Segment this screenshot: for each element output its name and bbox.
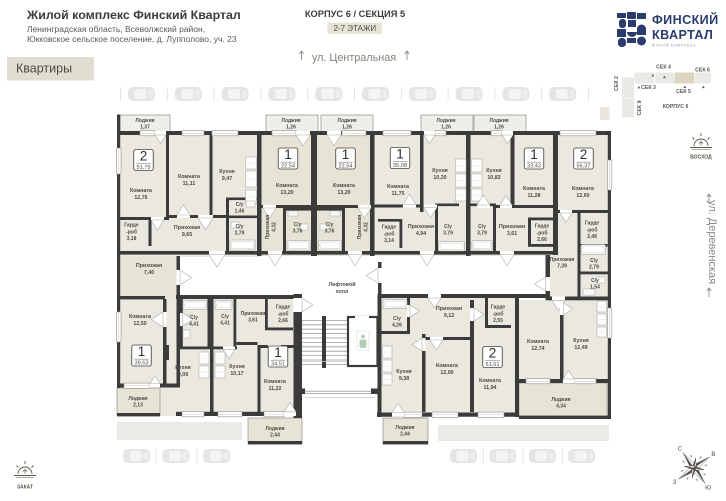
svg-text:Комната: Комната (479, 378, 501, 384)
svg-text:СЕК 1: СЕК 1 (637, 101, 643, 116)
svg-text:Гарде: Гарде (124, 223, 139, 229)
svg-text:33,43: 33,43 (527, 163, 541, 169)
svg-text:3,14: 3,14 (384, 238, 394, 244)
svg-text:51,61: 51,61 (486, 362, 500, 368)
svg-text:холл: холл (336, 289, 349, 295)
svg-text:С/у: С/у (591, 278, 599, 284)
svg-text:С/у: С/у (393, 316, 401, 322)
svg-text:Прихожая: Прихожая (136, 263, 162, 269)
svg-text:2: 2 (580, 147, 588, 162)
svg-text:2,66: 2,66 (278, 318, 288, 324)
svg-text:11,22: 11,22 (269, 386, 282, 392)
svg-text:1: 1 (342, 147, 350, 162)
svg-text:С/у: С/у (590, 258, 598, 264)
svg-text:С/у: С/у (221, 314, 229, 320)
svg-text:Кухня: Кухня (229, 364, 244, 370)
svg-text:Лоджия: Лоджия (128, 396, 147, 402)
svg-text:3,76: 3,76 (325, 229, 335, 235)
svg-text:2,55: 2,55 (493, 318, 503, 324)
svg-text:2,66: 2,66 (537, 237, 547, 243)
svg-text:В: В (711, 452, 715, 458)
svg-text:-роб: -роб (278, 310, 289, 317)
svg-text:13,20: 13,20 (337, 190, 350, 196)
svg-text:Ленинградская область, Всеволж: Ленинградская область, Всеволжский район… (27, 24, 205, 34)
svg-text:51,79: 51,79 (137, 165, 151, 171)
svg-text:9,65: 9,65 (182, 232, 192, 238)
svg-text:-роб: -роб (537, 229, 548, 236)
svg-text:1,54: 1,54 (590, 285, 600, 291)
svg-text:2,48: 2,48 (587, 234, 597, 240)
svg-text:Лоджия: Лоджия (551, 397, 570, 403)
svg-text:Прихожая: Прихожая (241, 311, 266, 317)
svg-text:1,26: 1,26 (494, 125, 504, 131)
svg-text:Кухня: Кухня (219, 169, 234, 175)
svg-text:9,12: 9,12 (444, 313, 454, 319)
svg-text:-роб: -роб (493, 310, 504, 317)
svg-text:Кухня: Кухня (573, 338, 588, 344)
svg-text:Квартиры: Квартиры (16, 62, 72, 76)
svg-text:12,00: 12,00 (440, 370, 453, 376)
svg-text:35,08: 35,08 (393, 163, 407, 169)
svg-text:2,79: 2,79 (589, 265, 599, 271)
svg-text:Комната: Комната (523, 186, 545, 192)
svg-text:Прихожая: Прихожая (550, 257, 575, 263)
svg-text:Гарде: Гарде (382, 225, 397, 231)
svg-text:9,09: 9,09 (178, 372, 188, 378)
svg-text:С: С (678, 447, 683, 453)
svg-text:4,41: 4,41 (220, 321, 230, 327)
svg-text:10,83: 10,83 (487, 175, 500, 181)
svg-text:Юкковское сельское поселение,: Юкковское сельское поселение, д. Лупполо… (27, 34, 237, 44)
svg-text:С/у: С/у (326, 222, 334, 228)
svg-text:11,94: 11,94 (484, 385, 497, 391)
svg-text:Лоджия: Лоджия (265, 426, 284, 432)
svg-text:Гарде: Гарде (276, 305, 291, 311)
svg-text:9,38: 9,38 (399, 376, 409, 382)
svg-text:Прихожая: Прихожая (357, 215, 363, 240)
svg-text:Жилой комплекс Финский Квартал: Жилой комплекс Финский Квартал (26, 8, 241, 22)
svg-text:2,44: 2,44 (270, 433, 280, 439)
svg-text:КОРПУС 6: КОРПУС 6 (663, 104, 689, 110)
svg-text:Прихожая: Прихожая (174, 225, 200, 231)
svg-text:12,60: 12,60 (576, 193, 589, 199)
svg-text:С/у: С/у (190, 315, 198, 321)
svg-text:2-7 ЭТАЖИ: 2-7 ЭТАЖИ (333, 24, 376, 33)
svg-text:3,79: 3,79 (477, 231, 487, 237)
svg-text:КОРПУС 6 / СЕКЦИЯ 5: КОРПУС 6 / СЕКЦИЯ 5 (305, 9, 405, 19)
svg-text:11,28: 11,28 (528, 193, 541, 199)
svg-text:З: З (673, 480, 677, 486)
svg-text:Прихожая: Прихожая (499, 224, 525, 230)
svg-text:Лифтовой: Лифтовой (329, 281, 356, 288)
svg-text:КВАРТАЛ: КВАРТАЛ (652, 28, 713, 42)
svg-text:С/у: С/у (478, 224, 486, 230)
svg-text:56,37: 56,37 (577, 163, 591, 169)
svg-text:Ю: Ю (705, 485, 711, 491)
svg-text:СЕК 5: СЕК 5 (676, 89, 691, 95)
svg-text:4,32: 4,32 (272, 222, 278, 232)
svg-text:1,26: 1,26 (441, 125, 451, 131)
svg-text:12,76: 12,76 (134, 195, 147, 201)
svg-text:2,79: 2,79 (235, 231, 245, 237)
svg-text:Гарде: Гарде (491, 305, 506, 311)
svg-text:1: 1 (396, 146, 404, 161)
svg-text:Комната: Комната (527, 339, 549, 345)
svg-text:ФИНСКИЙ: ФИНСКИЙ (652, 12, 719, 27)
svg-text:Лоджия: Лоджия (395, 425, 414, 431)
svg-text:ВОСХОД: ВОСХОД (690, 154, 712, 160)
svg-text:СЕК 2: СЕК 2 (614, 76, 620, 91)
svg-text:Комната: Комната (178, 174, 200, 180)
svg-text:13,20: 13,20 (280, 190, 293, 196)
svg-text:1,26: 1,26 (286, 125, 296, 131)
svg-text:ЗАКАТ: ЗАКАТ (17, 484, 33, 490)
svg-text:Комната: Комната (129, 314, 151, 320)
svg-text:Лоджия: Лоджия (489, 118, 508, 124)
svg-text:-роб: -роб (126, 228, 137, 235)
svg-text:2,13: 2,13 (133, 403, 143, 409)
svg-text:С/у: С/у (236, 224, 244, 230)
svg-text:Лоджия: Лоджия (436, 118, 455, 124)
svg-text:2: 2 (489, 345, 497, 360)
svg-text:1: 1 (530, 147, 538, 162)
svg-text:Комната: Комната (264, 379, 286, 385)
svg-text:12,50: 12,50 (133, 321, 146, 327)
svg-text:Лоджия: Лоджия (337, 118, 356, 124)
svg-text:Лоджия: Лоджия (281, 118, 300, 124)
svg-text:2,44: 2,44 (400, 432, 410, 438)
svg-text:1,46: 1,46 (235, 209, 245, 215)
svg-text:10,17: 10,17 (230, 371, 243, 377)
svg-text:7,40: 7,40 (144, 270, 154, 276)
svg-text:1,37: 1,37 (140, 125, 150, 131)
svg-text:4,32: 4,32 (364, 222, 370, 232)
svg-text:Комната: Комната (572, 186, 594, 192)
svg-text:Кухня: Кухня (432, 168, 447, 174)
svg-text:Комната: Комната (333, 183, 355, 189)
svg-text:22,54: 22,54 (339, 163, 353, 169)
svg-text:3,61: 3,61 (248, 318, 258, 324)
svg-text:39,53: 39,53 (135, 360, 149, 366)
svg-text:4,41: 4,41 (189, 322, 199, 328)
svg-text:Прихожая: Прихожая (265, 215, 271, 240)
svg-text:С/у: С/у (444, 224, 452, 230)
svg-text:С/у: С/у (294, 222, 302, 228)
svg-text:Кухня: Кухня (396, 369, 411, 375)
svg-text:11,75: 11,75 (392, 191, 405, 197)
svg-text:СЕК 6: СЕК 6 (695, 67, 710, 73)
svg-text:Кухня: Кухня (486, 168, 501, 174)
svg-text:1,26: 1,26 (342, 125, 352, 131)
svg-text:Прихожая: Прихожая (408, 224, 434, 230)
svg-text:9,47: 9,47 (222, 176, 232, 182)
svg-text:Комната: Комната (387, 184, 409, 190)
svg-text:1: 1 (138, 344, 146, 359)
svg-text:СЕК 4: СЕК 4 (656, 64, 671, 70)
svg-text:ул. Центральная: ул. Центральная (312, 52, 396, 64)
svg-text:4,26: 4,26 (392, 323, 402, 329)
svg-text:Комната: Комната (130, 188, 152, 194)
svg-text:34,51: 34,51 (271, 361, 285, 367)
svg-text:4,34: 4,34 (556, 404, 566, 410)
svg-text:ул. Деревенская: ул. Деревенская (706, 200, 718, 284)
svg-text:12,74: 12,74 (531, 346, 544, 352)
svg-text:-роб: -роб (384, 230, 395, 237)
svg-text:Прихожая: Прихожая (436, 306, 462, 312)
svg-text:1: 1 (284, 147, 292, 162)
svg-text:12,49: 12,49 (574, 345, 587, 351)
svg-text:11,11: 11,11 (183, 181, 196, 187)
svg-text:С/у: С/у (236, 202, 244, 208)
svg-text:Кухня: Кухня (175, 365, 190, 371)
svg-text:1: 1 (274, 345, 282, 360)
svg-text:СЕК 3: СЕК 3 (641, 85, 656, 91)
svg-text:3,76: 3,76 (293, 229, 303, 235)
svg-text:3,61: 3,61 (507, 231, 517, 237)
svg-text:ЖИЛОЙ КОМПЛЕКС: ЖИЛОЙ КОМПЛЕКС (652, 44, 696, 48)
svg-text:Комната: Комната (436, 363, 458, 369)
svg-text:10,20: 10,20 (433, 175, 446, 181)
svg-text:3,18: 3,18 (127, 236, 137, 242)
svg-text:Гарде: Гарде (535, 224, 550, 230)
svg-text:-роб: -роб (587, 226, 598, 233)
svg-text:2: 2 (140, 148, 148, 163)
svg-text:3,79: 3,79 (443, 231, 453, 237)
svg-text:Гарде: Гарде (585, 221, 600, 227)
svg-text:22,54: 22,54 (281, 163, 295, 169)
svg-text:Лоджия: Лоджия (135, 118, 154, 124)
svg-text:4,94: 4,94 (416, 231, 426, 237)
svg-text:7,39: 7,39 (557, 264, 567, 270)
svg-text:Комната: Комната (276, 183, 298, 189)
